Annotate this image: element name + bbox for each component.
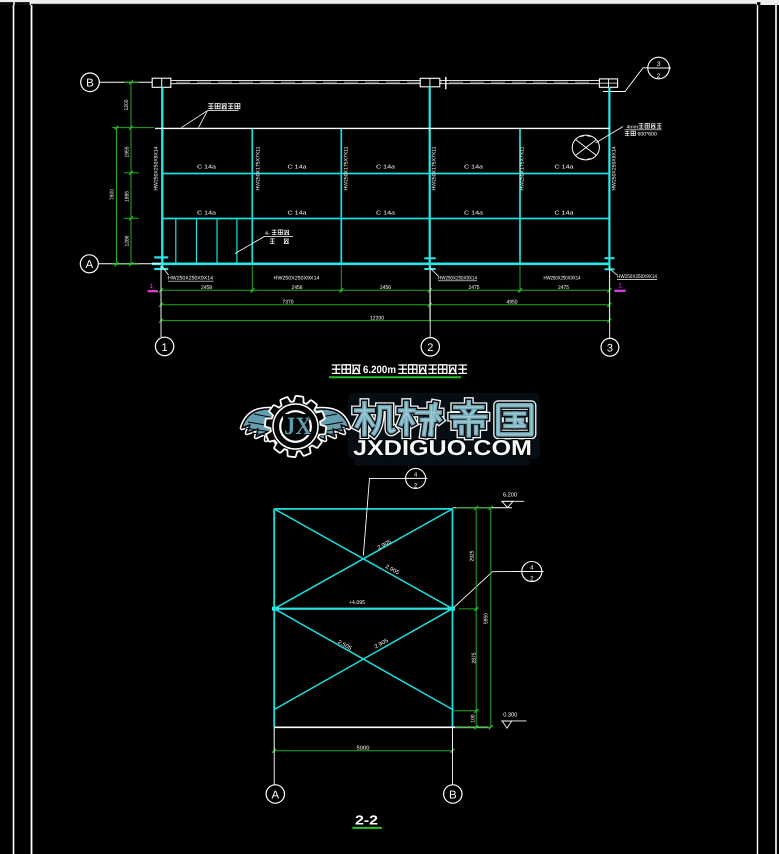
svg-text:C 14a: C 14a: [288, 210, 308, 216]
svg-text:2456: 2456: [380, 285, 391, 291]
svg-text:2475: 2475: [469, 285, 480, 291]
svg-text:2456: 2456: [292, 285, 303, 291]
svg-text:HW250X250X9X14: HW250X250X9X14: [168, 276, 213, 282]
svg-text:2: 2: [414, 482, 418, 489]
svg-text:2925: 2925: [469, 551, 475, 562]
svg-text:0.300: 0.300: [503, 711, 518, 718]
svg-text:3: 3: [607, 343, 613, 355]
svg-text:1: 1: [618, 283, 622, 290]
svg-text:C 14a: C 14a: [555, 165, 575, 171]
svg-text:C 14a: C 14a: [197, 210, 217, 216]
svg-text:JX: JX: [284, 413, 311, 440]
svg-text:1286: 1286: [125, 236, 131, 247]
svg-text:C 14a: C 14a: [464, 165, 484, 171]
svg-text:1200: 1200: [124, 100, 130, 111]
svg-text:100: 100: [470, 715, 476, 723]
svg-text:4mm: 4mm: [627, 124, 639, 130]
svg-text:JXDIGUO.COM: JXDIGUO.COM: [353, 436, 532, 460]
svg-text:HW250X250X9X14: HW250X250X9X14: [611, 146, 617, 190]
svg-text:C 14a: C 14a: [555, 210, 575, 216]
svg-text:12330: 12330: [370, 316, 384, 322]
svg-text:B: B: [449, 789, 457, 801]
svg-text:C 14a: C 14a: [376, 210, 396, 216]
svg-text:A: A: [85, 259, 93, 271]
svg-text:7600: 7600: [110, 189, 116, 200]
svg-text:2458: 2458: [201, 285, 212, 291]
svg-text:1955: 1955: [125, 147, 131, 158]
svg-text:2475: 2475: [558, 285, 569, 291]
svg-text:6.200m: 6.200m: [363, 364, 396, 376]
svg-text:4: 4: [530, 565, 534, 572]
svg-text:+4.095: +4.095: [349, 600, 365, 606]
svg-text:HW250X250X9X14: HW250X250X9X14: [274, 276, 320, 282]
svg-text:1: 1: [149, 283, 153, 290]
svg-text:HW250X250X9X14: HW250X250X9X14: [544, 276, 581, 282]
svg-text:5950: 5950: [484, 613, 490, 624]
svg-text:C 14a: C 14a: [288, 165, 308, 171]
svg-text:4950: 4950: [507, 300, 518, 306]
svg-text:4: 4: [414, 471, 418, 478]
svg-text:2: 2: [427, 342, 433, 354]
svg-text:1995: 1995: [125, 191, 131, 202]
svg-text:2875: 2875: [471, 653, 477, 664]
svg-text:1: 1: [162, 342, 168, 354]
svg-text:A: A: [271, 789, 279, 801]
svg-text:B: B: [86, 78, 94, 90]
svg-text:HW250X175X7X11: HW250X175X7X11: [432, 146, 438, 190]
svg-text:7370: 7370: [283, 300, 294, 306]
svg-text:600*600: 600*600: [638, 132, 657, 138]
svg-text:2: 2: [530, 576, 534, 583]
svg-text:HW250X175X7X11: HW250X175X7X11: [520, 146, 526, 190]
svg-text:C 14a: C 14a: [464, 210, 484, 216]
svg-text:3: 3: [657, 61, 661, 68]
svg-text:C 14a: C 14a: [197, 165, 217, 171]
svg-text:2-2: 2-2: [355, 813, 378, 828]
svg-text:HW250X175X7X11: HW250X175X7X11: [256, 146, 262, 190]
svg-text:C 14a: C 14a: [376, 165, 396, 171]
svg-text:HW250X250X9X14: HW250X250X9X14: [153, 146, 159, 190]
svg-text:6.200: 6.200: [503, 491, 518, 498]
svg-text:2: 2: [657, 73, 661, 80]
svg-text:5000: 5000: [357, 746, 370, 752]
svg-text:HW250X175X7X11: HW250X175X7X11: [344, 146, 350, 190]
